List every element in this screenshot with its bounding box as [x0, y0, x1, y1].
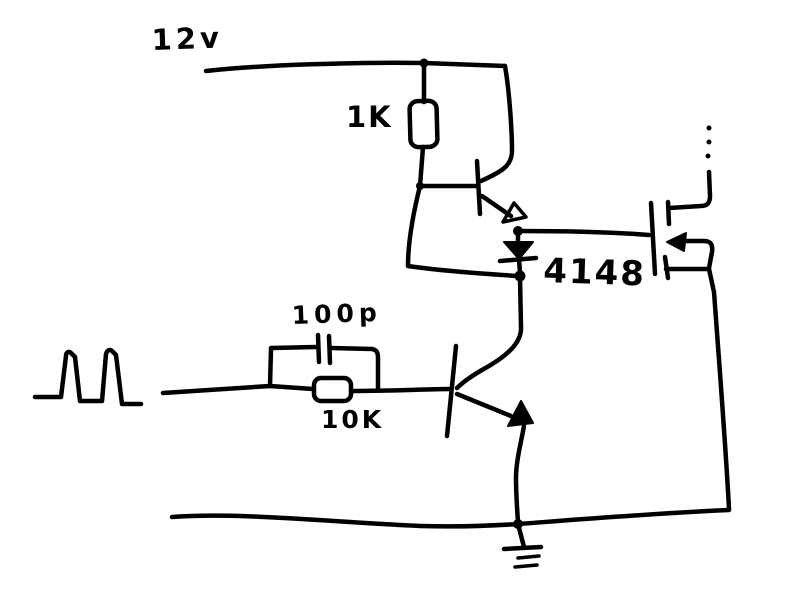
q1-base-bar [477, 161, 480, 214]
r2-left-wire [270, 386, 313, 389]
circuit-schematic: 12v 1K 4148 [0, 0, 794, 602]
ground-rail [172, 510, 729, 567]
mosfet-gate-bar [651, 203, 655, 274]
diode-d1-4148 [500, 235, 536, 273]
node-b [408, 186, 526, 282]
top-rail-wire [206, 63, 505, 71]
mosfet-body-wire [685, 241, 712, 268]
input-wire [163, 386, 270, 393]
supply-voltage-label: 12v [151, 21, 223, 57]
c1-plate-left [318, 335, 319, 362]
gate-wire [518, 231, 649, 235]
q2-emitter-down-wire [516, 426, 524, 522]
c1-left-wire [271, 347, 316, 348]
mosfet-q3 [651, 126, 729, 510]
gate-node [513, 226, 649, 236]
q1-collector-wire [481, 66, 512, 181]
schematic-canvas: 12v 1K 4148 [0, 0, 794, 602]
resistor-r1-1k [409, 63, 437, 186]
r1-value-label: 1K [346, 100, 393, 134]
bottom-rail-wire [172, 510, 729, 526]
resistor-r2-10k [270, 378, 351, 401]
d1-part-label: 4148 [543, 251, 647, 295]
ground-symbol-icon [504, 524, 541, 567]
input-pulse-waveform [35, 350, 141, 404]
supply-rail [206, 59, 505, 72]
continuation-dots-icon [706, 126, 712, 159]
q2-emitter-wire [457, 394, 511, 416]
q2-collector-wire [457, 278, 521, 388]
c1-value-label: 100p [291, 298, 382, 330]
r2-body [314, 378, 351, 401]
q2-emitter-arrow-icon [508, 401, 533, 426]
c1-left-riser [270, 349, 271, 386]
mosfet-drain-wire [669, 172, 710, 208]
mosfet-source-down-wire [709, 269, 729, 509]
c1-right-wire [331, 348, 378, 388]
q2-base-wire [351, 389, 451, 391]
r2-value-label: 10K [321, 405, 384, 434]
r1-body [409, 101, 437, 148]
mosfet-channel-drain-segment [668, 202, 669, 224]
r1-bottom-wire [420, 147, 423, 186]
